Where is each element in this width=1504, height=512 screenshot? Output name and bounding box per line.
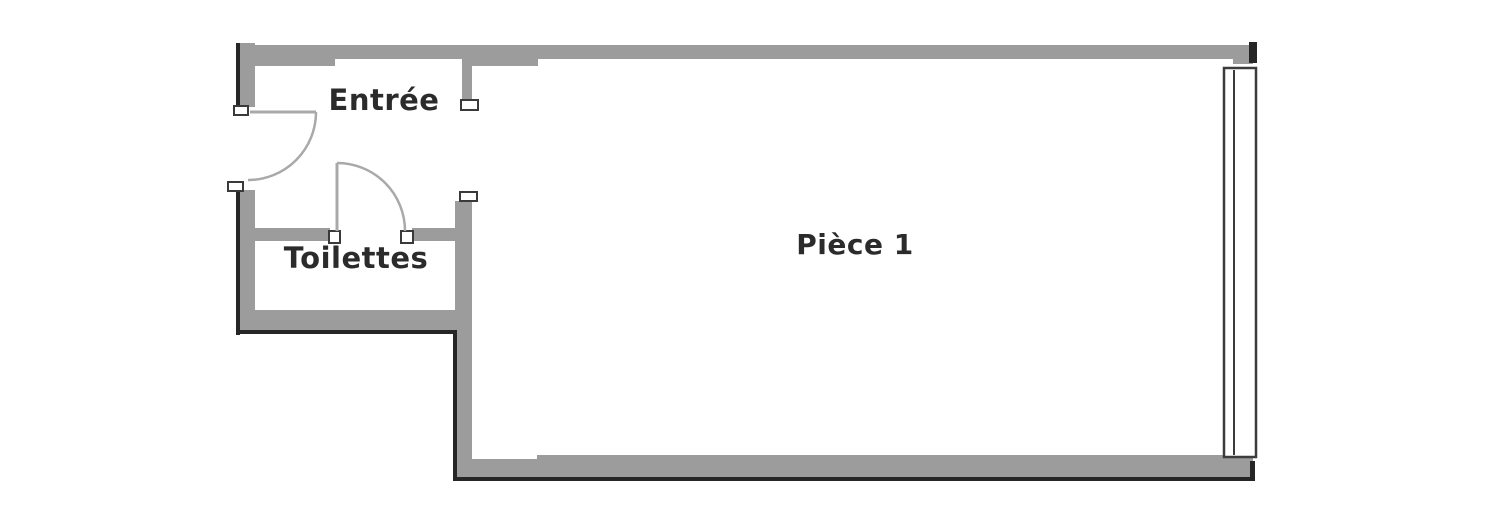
- entrance-door-hinge-jamb: [234, 106, 248, 115]
- wall-toilettes-bottom: [238, 310, 455, 331]
- edge-left-lower: [236, 190, 240, 335]
- edge-bottom-wall: [453, 477, 1255, 481]
- edge-top-wall-cap: [1249, 42, 1257, 63]
- window: [1224, 68, 1256, 457]
- passage-lower-jamb: [460, 192, 477, 201]
- wall-vertical-stub-top: [462, 59, 472, 101]
- edge-bottom-wall-cap: [1250, 461, 1255, 481]
- edge-left-upper: [236, 43, 240, 107]
- wall-bottom-main: [537, 455, 1253, 479]
- room-label-toilettes: Toilettes: [284, 241, 429, 275]
- toilet-door-swing-arc: [337, 163, 405, 231]
- wall-bottom-left: [472, 459, 537, 479]
- wall-left-upper: [238, 43, 255, 107]
- edge-toilettes-bottom: [236, 330, 457, 334]
- door-jambs: [228, 100, 478, 243]
- floor-plan-canvas: Entrée Toilettes Pièce 1: [0, 0, 1504, 512]
- wall-top: [248, 45, 1253, 59]
- wall-top-stub-left: [248, 59, 335, 66]
- window-frame: [1224, 68, 1256, 457]
- edge-vertical-wall: [453, 330, 457, 480]
- room-label-piece-1: Pièce 1: [796, 228, 913, 261]
- doors: [248, 112, 405, 231]
- passage-upper-jamb: [461, 100, 478, 110]
- wall-toilettes-top-right: [412, 228, 455, 241]
- floor-plan: Entrée Toilettes Pièce 1: [0, 0, 1504, 512]
- room-labels: Entrée Toilettes Pièce 1: [284, 83, 914, 275]
- wall-vertical-main: [455, 201, 472, 480]
- wall-top-stub-mid: [472, 59, 538, 66]
- entrance-door-swing-arc: [248, 112, 316, 180]
- entrance-door-strike-jamb: [228, 182, 243, 191]
- wall-toilettes-top-left: [254, 228, 330, 241]
- room-label-entree: Entrée: [329, 83, 440, 117]
